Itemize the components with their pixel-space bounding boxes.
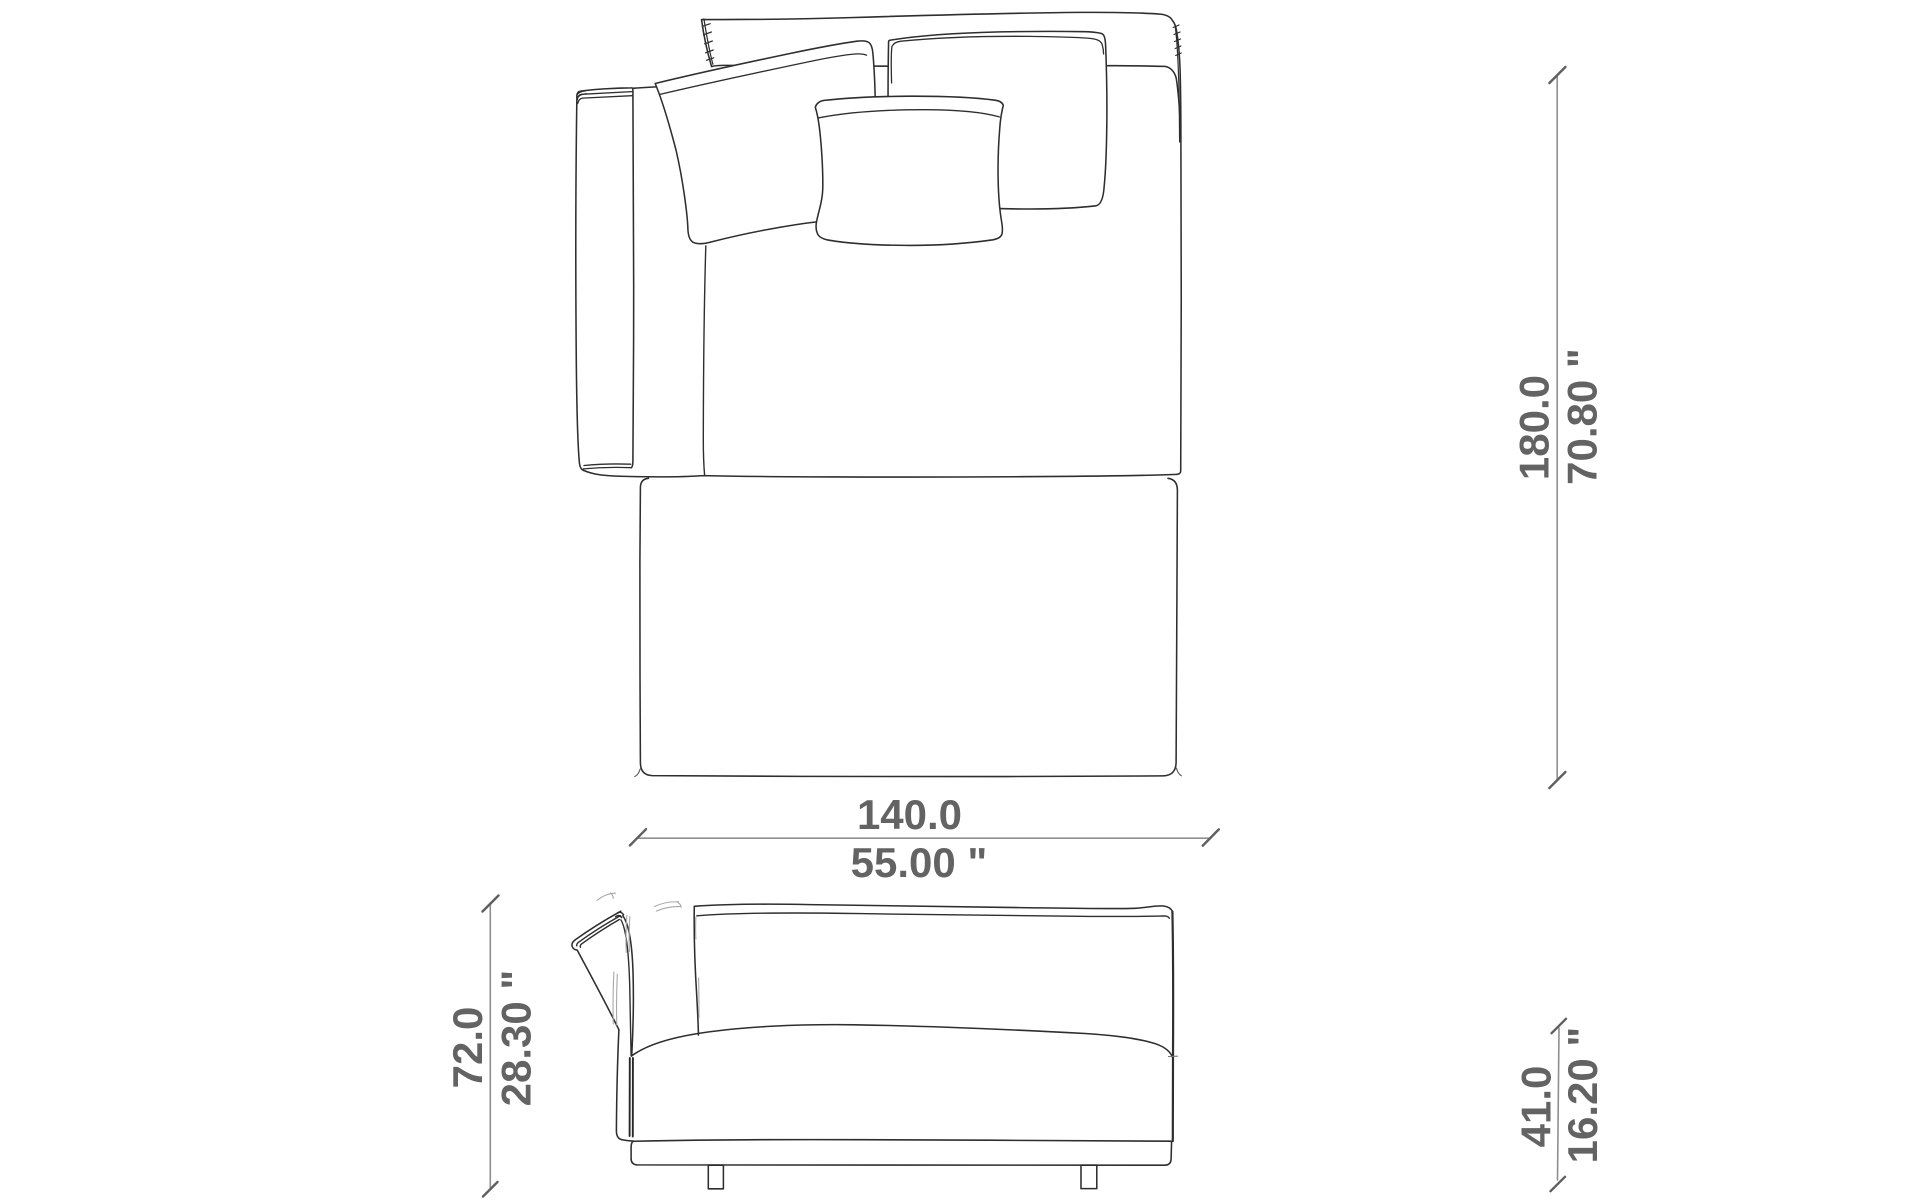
svg-text:16.20 ": 16.20 " (1559, 1027, 1606, 1164)
svg-text:180.0: 180.0 (1511, 375, 1558, 480)
svg-text:41.0: 41.0 (1512, 1066, 1559, 1148)
svg-text:55.00 ": 55.00 " (851, 839, 988, 886)
svg-text:70.80 ": 70.80 " (1559, 348, 1606, 485)
svg-text:140.0: 140.0 (857, 791, 962, 838)
svg-text:72.0: 72.0 (444, 1007, 491, 1089)
svg-text:28.30 ": 28.30 " (492, 970, 539, 1107)
